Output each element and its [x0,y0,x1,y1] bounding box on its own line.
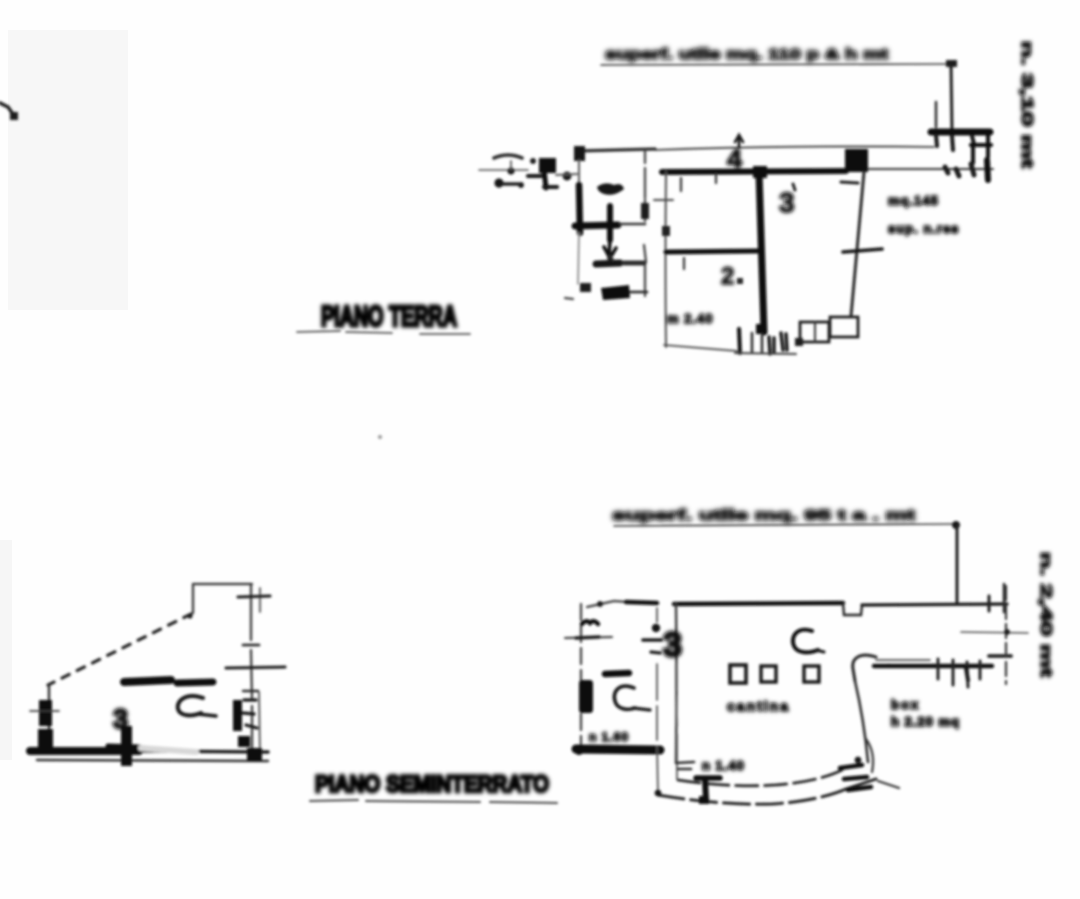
svg-text:n. 2,40 mt: n. 2,40 mt [1037,552,1054,678]
svg-text:2: 2 [721,263,734,290]
svg-text:mq.145: mq.145 [888,193,939,208]
svg-text:PIANO TERRA: PIANO TERRA [321,301,457,333]
svg-text:4: 4 [727,144,742,174]
svg-text:sup. n.res: sup. n.res [888,221,959,236]
svg-text:m 2.40: m 2.40 [667,311,713,326]
svg-text:3: 3 [779,187,795,218]
svg-text:3: 3 [663,626,682,664]
svg-text:n. 3,10 mt: n. 3,10 mt [1018,41,1035,169]
svg-text:n 1.40: n 1.40 [702,758,745,773]
svg-text:superf. utile mq. 110 p & h m: superf. utile mq. 110 p & h mt [605,46,888,63]
svg-text:PIANO SEMINTERRATO: PIANO SEMINTERRATO [315,771,549,798]
svg-text:cantina: cantina [727,698,790,714]
svg-text:superf. utile mq. 95 t a . mt: superf. utile mq. 95 t a . mt [612,507,915,524]
svg-text:h 2.20 mq: h 2.20 mq [891,714,960,729]
svg-text:box: box [891,697,920,712]
svg-text:n 1.60: n 1.60 [589,730,629,744]
